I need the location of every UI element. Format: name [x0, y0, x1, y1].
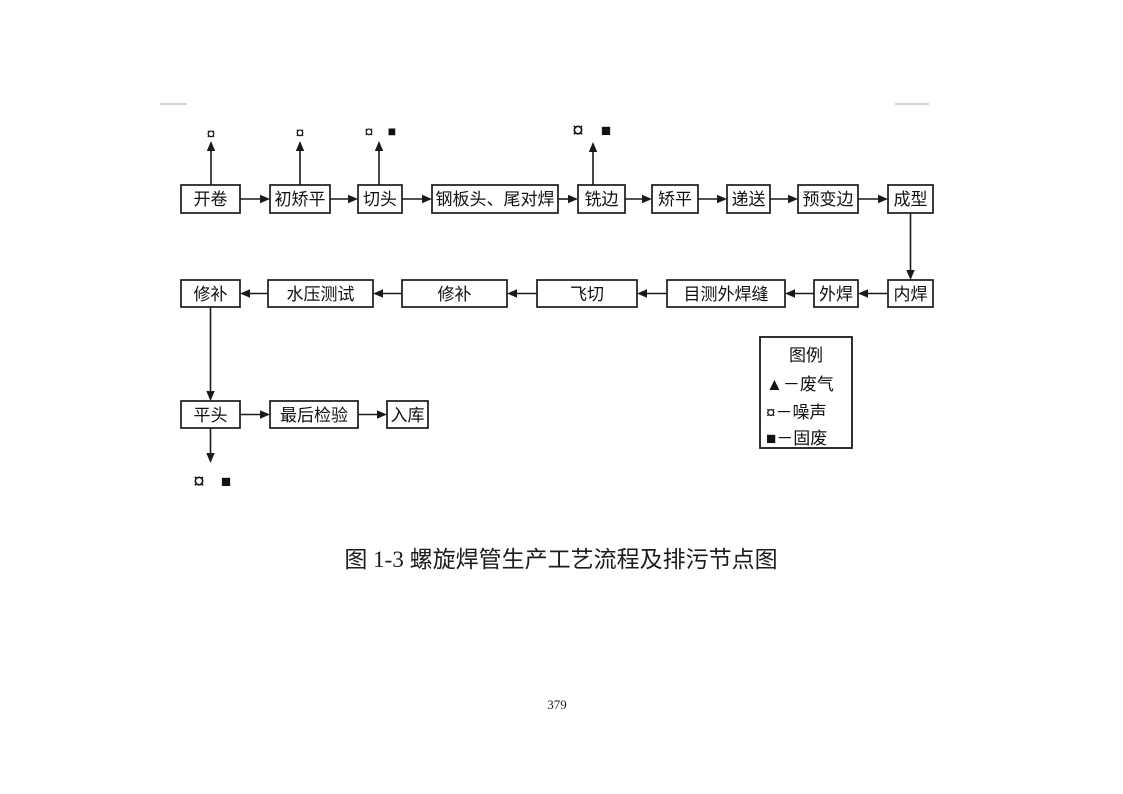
- flow-arrow-left: [507, 289, 537, 297]
- flow-node-uncoiling: 开卷: [181, 185, 240, 213]
- solid-waste-icon: ■: [601, 121, 611, 140]
- node-label: 递送: [732, 190, 766, 209]
- node-label: 平头: [194, 406, 228, 425]
- flow-arrow-left: [785, 289, 814, 297]
- node-label: 目测外焊缝: [684, 285, 769, 304]
- node-label: 初矫平: [275, 190, 326, 209]
- legend-box: 图例 ▲－废气 ¤－噪声 ■－固废: [760, 337, 852, 448]
- flow-node-plate-head-tail-welding: 钢板头、尾对焊: [432, 185, 558, 213]
- page-number: 379: [547, 697, 567, 712]
- noise-icon: ¤: [193, 470, 205, 493]
- flow-node-visual-weld-inspection: 目测外焊缝: [667, 280, 785, 307]
- flow-arrow-right: [330, 195, 358, 203]
- flow-arrow-right: [358, 410, 387, 418]
- flow-arrow-right: [625, 195, 652, 203]
- document-page: 开卷 初矫平 切头 钢板头、尾对焊 铣边 矫平 递送 预变边 成型: [0, 0, 1123, 794]
- flow-arrow-left: [373, 289, 402, 297]
- node-label: 成型: [894, 190, 928, 209]
- solid-waste-icon: ■: [221, 472, 231, 491]
- solid-waste-icon: ■: [388, 123, 396, 139]
- node-label: 最后检验: [280, 406, 348, 425]
- flow-arrow-left: [858, 289, 888, 297]
- flow-node-inner-welding: 内焊: [888, 280, 933, 307]
- node-label: 矫平: [658, 190, 692, 209]
- flow-arrow-right: [698, 195, 727, 203]
- node-label: 外焊: [819, 285, 853, 304]
- flow-arrow-down: [906, 213, 914, 280]
- node-label: 切头: [363, 190, 397, 209]
- flow-node-hydrostatic-test: 水压测试: [268, 280, 373, 307]
- flow-node-forming: 成型: [888, 185, 933, 213]
- legend-item-exhaust-gas: ▲－废气: [766, 375, 834, 394]
- flow-node-pipe-end-facing: 平头: [181, 401, 240, 428]
- flow-arrow-left: [240, 289, 268, 297]
- flow-node-warehousing: 入库: [387, 401, 428, 428]
- flow-node-edge-milling: 铣边: [578, 185, 625, 213]
- node-label: 铣边: [585, 190, 619, 209]
- noise-icon: ¤: [365, 124, 374, 141]
- flow-node-repair-final: 修补: [181, 280, 240, 307]
- flow-node-head-cutting: 切头: [358, 185, 402, 213]
- flow-arrow-down: [206, 307, 214, 401]
- legend-item-solid-waste: ■－固废: [766, 429, 827, 448]
- node-label: 修补: [194, 285, 228, 304]
- flow-arrow-right: [402, 195, 432, 203]
- flow-arrow-right: [240, 195, 270, 203]
- flow-arrow-right: [240, 410, 270, 418]
- noise-icon: ¤: [207, 126, 216, 143]
- node-label: 预变边: [803, 190, 854, 209]
- flow-node-flying-cut: 飞切: [537, 280, 637, 307]
- flow-node-delivery: 递送: [727, 185, 770, 213]
- flow-arrow-up-emission: [207, 141, 215, 185]
- flow-arrow-down-emission: [206, 428, 214, 463]
- noise-icon: ¤: [296, 125, 305, 142]
- node-label: 开卷: [194, 190, 228, 209]
- node-label: 入库: [391, 406, 425, 425]
- node-label: 修补: [438, 285, 472, 304]
- figure-caption: 图 1-3 螺旋焊管生产工艺流程及排污节点图: [344, 547, 777, 572]
- flow-arrow-up-emission: [296, 141, 304, 185]
- node-label: 水压测试: [287, 285, 355, 304]
- flow-node-pre-bending-edge: 预变边: [798, 185, 858, 213]
- flow-node-initial-leveling: 初矫平: [270, 185, 330, 213]
- flow-arrow-right: [558, 195, 578, 203]
- flow-arrow-up-emission: [375, 141, 383, 185]
- legend-item-noise: ¤－噪声: [766, 403, 826, 422]
- legend-title: 图例: [789, 346, 823, 365]
- flow-arrow-right: [858, 195, 888, 203]
- noise-icon: ¤: [572, 119, 584, 142]
- flow-arrow-up-emission: [589, 142, 597, 185]
- flow-arrow-left: [637, 289, 667, 297]
- flow-diagram: 开卷 初矫平 切头 钢板头、尾对焊 铣边 矫平 递送 预变边 成型: [0, 0, 1123, 794]
- flow-node-outer-welding: 外焊: [814, 280, 858, 307]
- flow-arrow-right: [770, 195, 798, 203]
- node-label: 钢板头、尾对焊: [436, 190, 555, 209]
- node-label: 内焊: [894, 285, 928, 304]
- flow-node-leveling: 矫平: [652, 185, 698, 213]
- node-label: 飞切: [570, 285, 604, 304]
- flow-node-repair: 修补: [402, 280, 507, 307]
- flow-node-final-inspection: 最后检验: [270, 401, 358, 428]
